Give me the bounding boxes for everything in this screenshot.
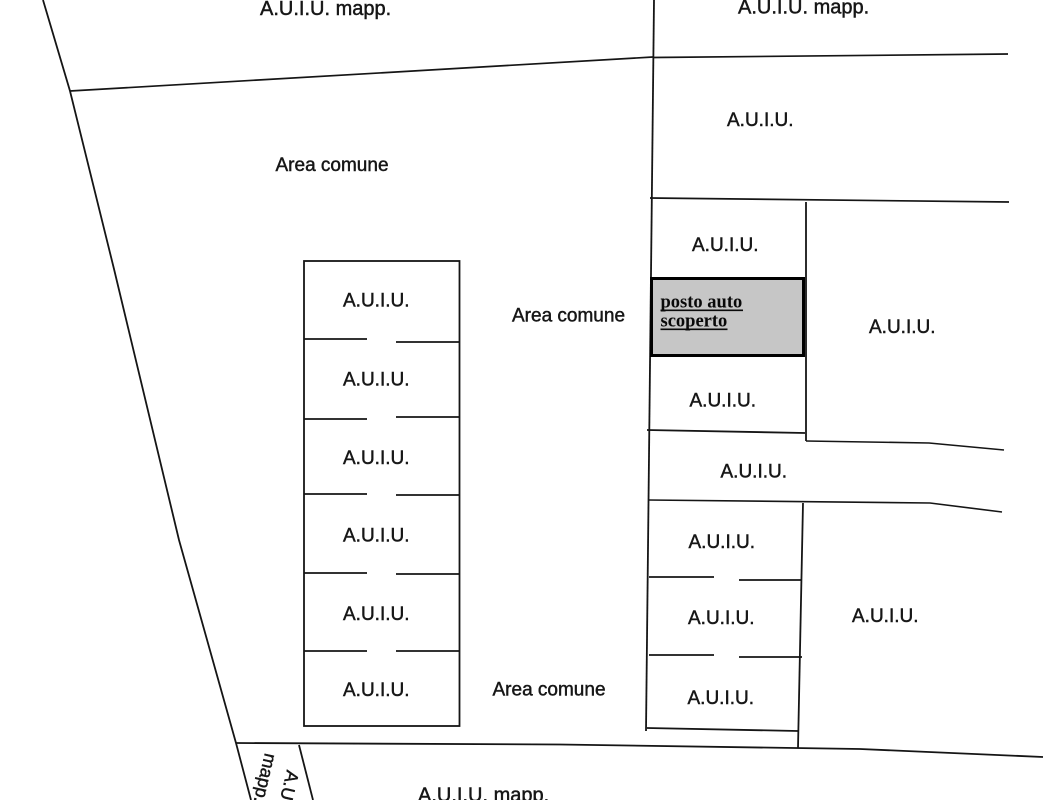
svg-text:A.U.I.U.: A.U.I.U. [343,370,410,391]
svg-text:A.U.I.U. mapp.: A.U.I.U. mapp. [418,785,549,800]
svg-text:A.U.I.U.: A.U.I.U. [343,448,410,469]
svg-text:Area comune: Area comune [512,306,625,327]
svg-text:A.U.I.U.: A.U.I.U. [869,317,936,338]
svg-text:A.U.I.U.: A.U.I.U. [852,606,919,627]
svg-text:A.U.I.U.: A.U.I.U. [690,391,757,412]
svg-text:A.U.I.U.: A.U.I.U. [343,291,410,312]
svg-text:A.U.I.U.: A.U.I.U. [727,110,794,131]
svg-text:A.U.I.U.: A.U.I.U. [343,526,410,547]
svg-text:A.U.I.U.: A.U.I.U. [343,604,410,625]
svg-text:Area comune: Area comune [493,680,606,701]
svg-text:A.U.I.U.: A.U.I.U. [688,688,755,709]
svg-text:A.U.I.U.: A.U.I.U. [688,608,755,629]
svg-text:Area comune: Area comune [276,155,389,176]
svg-text:A.U.I.U.: A.U.I.U. [721,462,788,483]
svg-text:A.U.I.U.: A.U.I.U. [692,235,759,256]
svg-text:A.U.I.U. mapp.: A.U.I.U. mapp. [738,0,869,19]
svg-text:A.U.I.U. mapp.: A.U.I.U. mapp. [260,0,391,20]
svg-text:A.U.I.U.: A.U.I.U. [689,532,756,553]
svg-text:A.U.I.U.: A.U.I.U. [343,680,410,701]
